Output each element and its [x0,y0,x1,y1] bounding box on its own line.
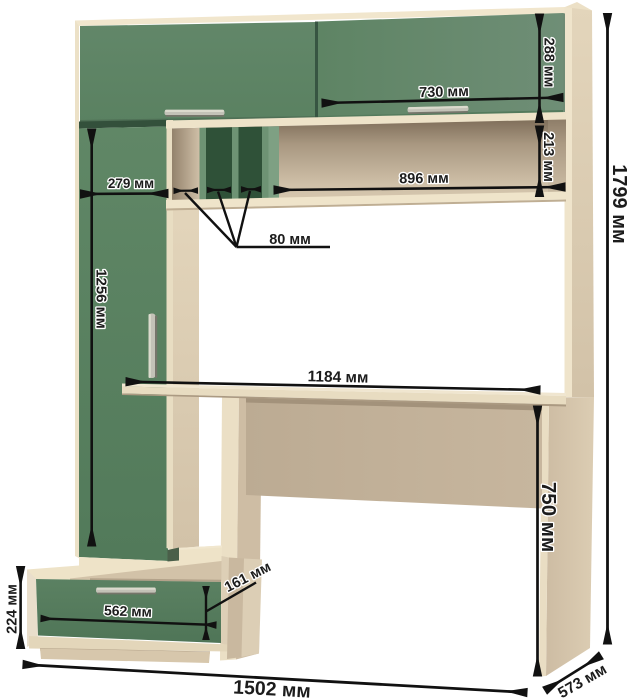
svg-text:80 мм: 80 мм [269,232,311,248]
svg-text:288 мм: 288 мм [540,38,556,88]
svg-text:1256 мм: 1256 мм [93,269,110,329]
svg-text:1502 мм: 1502 мм [233,676,312,700]
svg-text:896 мм: 896 мм [399,171,449,188]
svg-text:279 мм: 279 мм [108,176,154,191]
svg-text:730 мм: 730 мм [419,84,469,101]
svg-text:750 мм: 750 мм [537,482,560,552]
svg-text:1184 мм: 1184 мм [307,368,368,386]
svg-text:1799 мм: 1799 мм [608,164,627,244]
svg-text:562 мм: 562 мм [104,602,152,620]
svg-text:213 мм: 213 мм [540,132,556,182]
svg-text:224 мм: 224 мм [4,584,20,634]
